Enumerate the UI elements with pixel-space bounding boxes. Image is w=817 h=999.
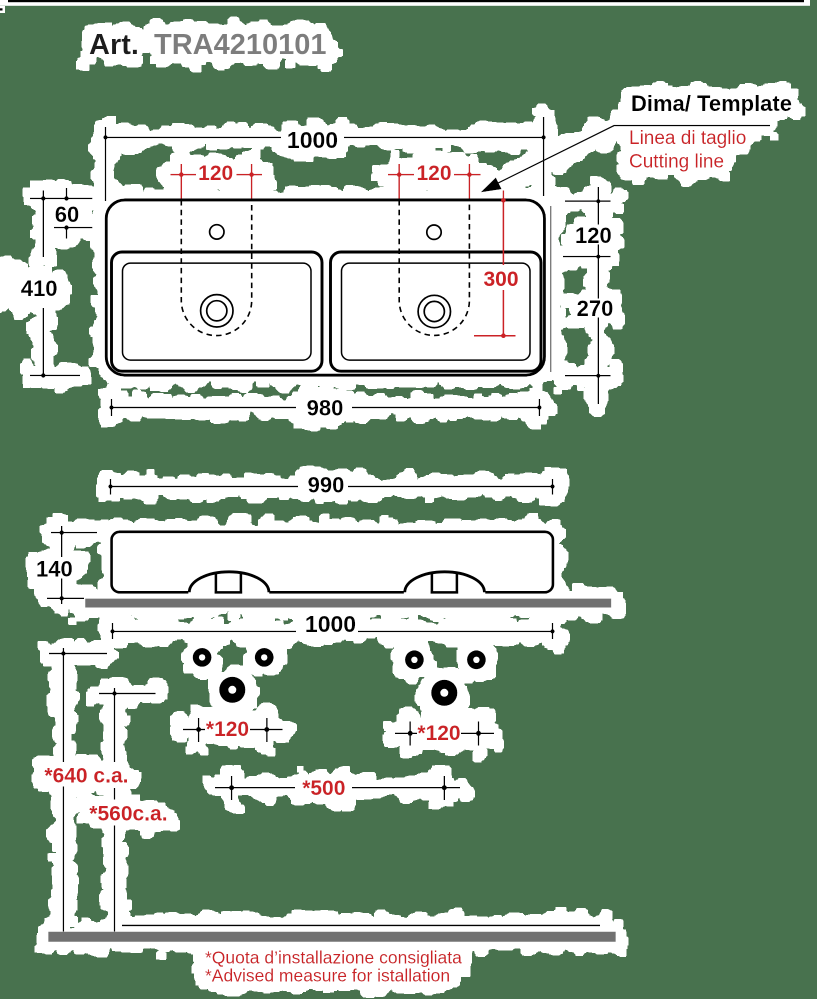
- svg-text:*500: *500: [302, 777, 345, 800]
- svg-text:60: 60: [55, 202, 79, 227]
- svg-text:120: 120: [416, 162, 451, 185]
- svg-text:*560c.a.: *560c.a.: [89, 803, 167, 826]
- svg-text:Art.TRA4210101: Art.TRA4210101: [89, 29, 327, 61]
- svg-text:*Quota d’installazione consigl: *Quota d’installazione consigliata: [205, 948, 462, 968]
- svg-text:120: 120: [198, 162, 233, 185]
- svg-text:*640 c.a.: *640 c.a.: [44, 765, 128, 788]
- svg-text:140: 140: [36, 557, 73, 582]
- svg-text:980: 980: [307, 396, 344, 421]
- svg-text:410: 410: [21, 276, 58, 301]
- svg-text:*Advised measure for istallati: *Advised measure for istallation: [205, 966, 450, 986]
- svg-text:990: 990: [308, 473, 345, 498]
- svg-text:1000: 1000: [305, 611, 356, 637]
- svg-text:Linea di taglio: Linea di taglio: [629, 128, 746, 149]
- svg-text:270: 270: [577, 296, 614, 321]
- svg-text:Dima/ Template: Dima/ Template: [631, 91, 792, 116]
- svg-text:*120: *120: [206, 718, 249, 741]
- svg-text:1000: 1000: [287, 127, 338, 153]
- svg-text:120: 120: [575, 223, 612, 248]
- svg-text:300: 300: [483, 268, 518, 291]
- svg-text:*120: *120: [417, 722, 460, 745]
- svg-text:Cutting line: Cutting line: [629, 152, 724, 173]
